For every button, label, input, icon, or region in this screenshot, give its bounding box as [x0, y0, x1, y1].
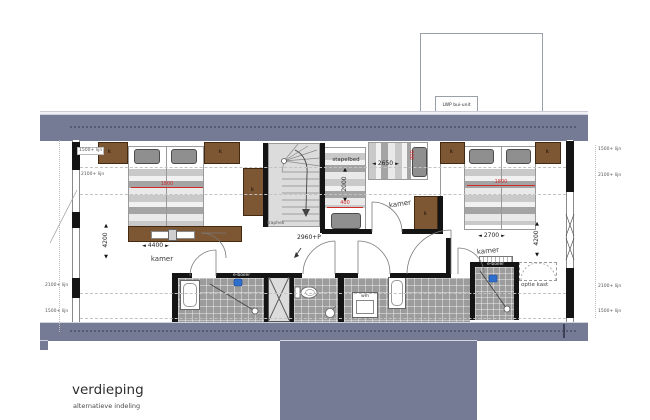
left-closet-b: k: [204, 142, 240, 164]
washing-machine-label: wm: [361, 294, 369, 300]
right-bed-pillow-2: [506, 149, 531, 164]
grid-line-left: [59, 140, 60, 332]
wc-wall-right: [338, 275, 344, 322]
right-width-value: 2700: [484, 232, 499, 240]
left-height-arrow-down: ▼: [102, 253, 110, 261]
left-width-value: 4400: [148, 242, 163, 250]
middle-bottom-wall-a: [322, 229, 372, 234]
left-bathtub-inner: [183, 283, 197, 307]
bottom-wall-hatch: [70, 330, 576, 332]
left-bed-pillow-1: [134, 149, 160, 164]
dim-arrow-left-icon: ◄: [372, 160, 376, 168]
bottom-extension: [280, 340, 477, 420]
left-closet-b-label: k: [219, 149, 222, 155]
corridor-wall-a: [172, 273, 192, 278]
middle-bed-value: 2650: [378, 160, 393, 168]
left-foot-dresser: [128, 226, 242, 242]
middle-bed-dim: ◄ 2650 ►: [372, 160, 399, 168]
stair-rail-label: traphek: [267, 221, 284, 227]
dim-arrow-right-icon: ►: [165, 242, 169, 250]
shaft-box: [268, 275, 290, 322]
right-height-arrow-down: ▼: [533, 251, 541, 259]
left-bed-red-line: [131, 187, 203, 188]
right-bed-red-line: [467, 185, 535, 186]
dim-arrow-right-icon: ►: [501, 232, 505, 240]
bottom-wall-tick: [563, 324, 565, 338]
right-wall-seg-2: [566, 268, 574, 318]
left-bath-door-arc: [190, 250, 216, 276]
left-bathtub: [180, 280, 200, 310]
grid-line-right: [595, 145, 596, 318]
staircase: [268, 143, 320, 227]
left-window-2: [72, 212, 80, 228]
right-bed: 1800: [464, 146, 536, 230]
left-dresser-handle: [168, 229, 177, 241]
height-dash-2100-top: [80, 194, 566, 195]
left-room-label: kamer: [142, 255, 182, 263]
middle-wardrobe-label: k: [424, 211, 427, 217]
lwp-unit-label: LWP bui-unit: [443, 103, 471, 109]
right-closet-a: k: [440, 142, 465, 164]
left-height-dim: 4200: [102, 225, 110, 255]
height-line-left-bottom-1: 2100+ lijn: [45, 283, 68, 289]
right-bed-divider: [501, 147, 502, 229]
floor-plan: LWP bui-unit k k 1800 ◄ 4400 ► ▲: [0, 0, 650, 420]
corridor-wall-d: [390, 273, 446, 278]
page-subtitle: alternatieve indeling: [73, 402, 140, 410]
stair-cabinet: k: [243, 168, 264, 216]
bunk-red-line: [327, 207, 363, 208]
bunk-bed-label: stapelbed: [326, 157, 366, 163]
middle-right-wall: [438, 196, 443, 233]
right-closet-a-label: k: [450, 149, 453, 155]
middle-left-wall: [320, 143, 325, 233]
bottom-left-stub: [40, 340, 48, 350]
left-closet-a-label: k: [108, 149, 111, 155]
height-dash-1500-bottom: [80, 318, 566, 319]
height-line-right-bottom-2: 1500+ lijn: [598, 309, 621, 315]
left-bed-pillow-2: [171, 149, 197, 164]
right-width-dim: ◄ 2700 ►: [478, 232, 505, 240]
dim-arrow-right-icon: ►: [395, 160, 399, 168]
level-marker-icon: [294, 248, 301, 258]
left-bed: 1800: [128, 146, 204, 230]
optie-kast-label: optie kast: [521, 282, 548, 288]
height-line-right-top-1: 1500+ lijn: [598, 147, 621, 153]
right-door-stub: [446, 238, 451, 278]
left-width-dim: ◄ 4400 ►: [142, 242, 169, 250]
left-window-3: [72, 278, 80, 298]
bath-wall-left: [172, 273, 178, 322]
left-bed-divider: [166, 147, 167, 229]
right-room-door-arc: [407, 230, 451, 274]
bottom-wall: [40, 322, 588, 341]
height-line-left-bottom-2: 1500+ lijn: [45, 309, 68, 315]
shower-wall-left: [470, 262, 475, 320]
right-wall-seg-1: [566, 141, 574, 192]
right-bed-pillow-1: [469, 149, 494, 164]
top-wall-hatch: [70, 126, 576, 128]
stair-wall: [263, 143, 268, 227]
top-wall: [40, 114, 588, 141]
right-bed-blanket: [465, 169, 535, 225]
stair-cabinet-label: k: [251, 187, 254, 193]
left-eboiler-label: e-boiler: [233, 273, 250, 278]
height-line-left-top-1: 1500+ lijn: [77, 147, 104, 155]
wc-floor: [294, 278, 338, 322]
height-line-left-top-2: 2100+ lijn: [81, 172, 104, 178]
height-line-right-top-2: 2100+ lijn: [598, 173, 621, 179]
washing-machine-inner: [356, 300, 374, 314]
height-line-right-bottom-1: 2100+ lijn: [598, 284, 621, 290]
shower-wall-right: [514, 262, 519, 320]
right-height-dim: 4200: [533, 223, 541, 253]
dim-arrow-left-icon: ◄: [142, 242, 146, 250]
level-label: 2960+P: [297, 234, 321, 242]
wc-door-arc: [303, 241, 335, 274]
washing-machine: wm: [352, 292, 378, 318]
bunk-bed-pillow: [331, 213, 361, 229]
middle-bottom-wall-b: [402, 229, 443, 234]
page-title: verdieping: [72, 382, 144, 398]
right-bed-red-dim: 1800: [489, 179, 513, 185]
height-dash-2100-bottom: [80, 293, 566, 294]
shaft-wall-left: [264, 275, 268, 322]
bunk-red-dim: 400: [333, 200, 357, 206]
level-value: 2960+P: [297, 234, 321, 242]
shaft-wall-right: [290, 275, 294, 322]
middle-bed-red-dim: 900: [410, 144, 416, 166]
right-eboiler-label: e-boiler: [487, 262, 504, 267]
dim-arrow-left-icon: ◄: [478, 232, 482, 240]
laundry-door-arc: [358, 241, 390, 274]
right-closet-b-label: k: [546, 149, 549, 155]
optie-kast-outline: [519, 262, 557, 281]
left-bed-red-dim: 1800: [155, 181, 179, 187]
height-dash-1500-top: [80, 167, 566, 168]
right-closet-b: k: [535, 142, 561, 164]
